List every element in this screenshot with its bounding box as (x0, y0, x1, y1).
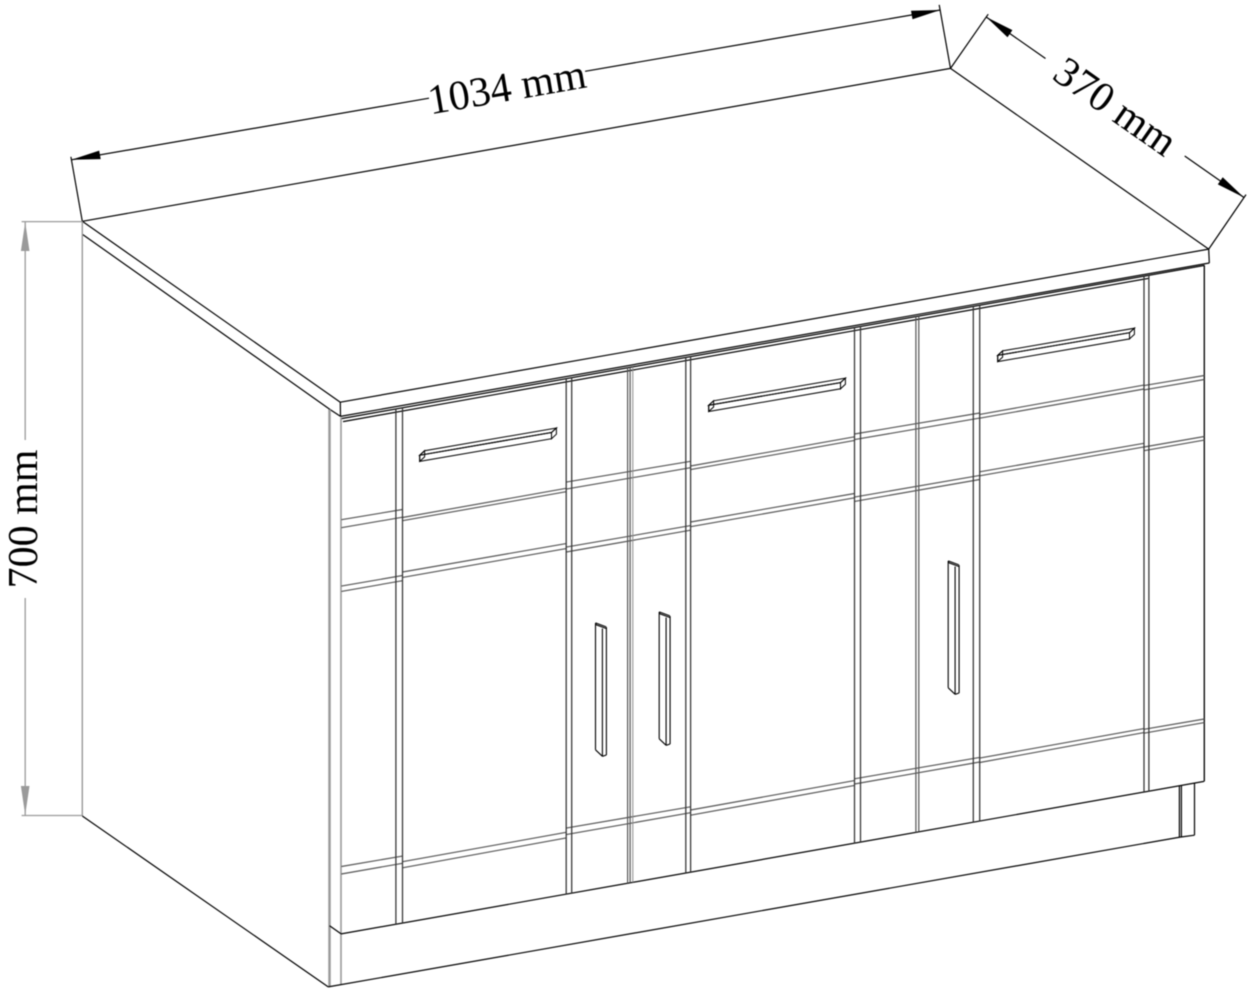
svg-text:700 mm: 700 mm (1, 449, 47, 588)
